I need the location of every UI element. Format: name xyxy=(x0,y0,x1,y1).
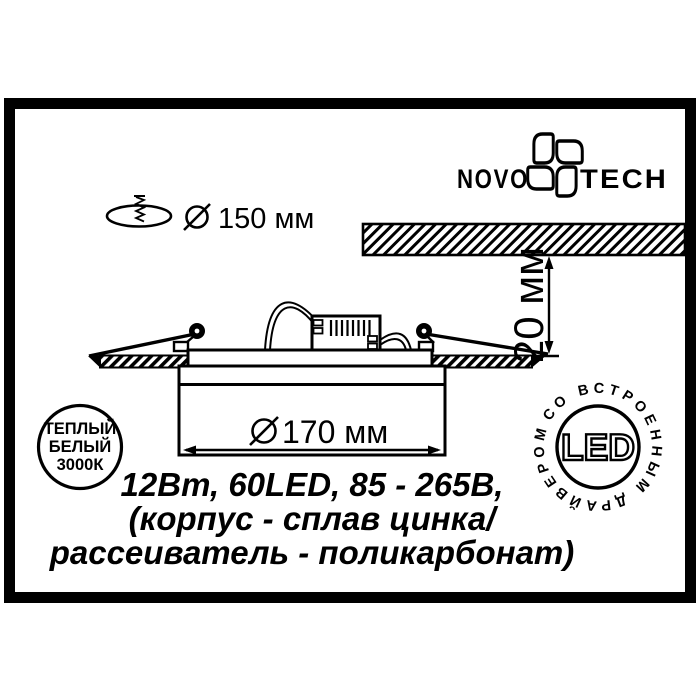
logo-text-tech: TECH xyxy=(580,164,668,194)
trim-flange-left xyxy=(88,356,188,368)
mounting-hole-icon xyxy=(107,196,171,227)
warm-white-line-1: ТЕПЛЫЙ xyxy=(44,419,117,438)
logo-text-novo: NOVO xyxy=(457,164,529,194)
flower-icon xyxy=(528,134,583,196)
cutout-diameter-label: 150 мм xyxy=(218,203,314,235)
driver-box xyxy=(312,316,380,352)
trim-flange-right xyxy=(432,354,548,368)
drill-icon xyxy=(136,197,144,222)
mounting-plate xyxy=(188,350,432,366)
warm-white-line-3: 3000К xyxy=(57,456,105,474)
depth-label: 20 мм xyxy=(505,247,552,363)
diagram-canvas: NOVO TECH 150 мм 20 мм xyxy=(0,0,700,700)
warm-white-badge: ТЕПЛЫЙ БЕЛЫЙ 3000К xyxy=(39,406,122,489)
spec-line-1: 12Вт, 60LED, 85 - 265В, xyxy=(121,466,504,503)
depth-dimension: 20 мм xyxy=(505,247,559,363)
cutout-dimension: 150 мм xyxy=(107,196,314,235)
spec-text: 12Вт, 60LED, 85 - 265В, (корпус - сплав … xyxy=(49,466,575,571)
spec-line-2: (корпус - сплав цинка/ xyxy=(129,500,500,537)
warm-white-line-2: БЕЛЫЙ xyxy=(49,437,111,456)
diameter-symbol xyxy=(184,204,210,230)
led-badge: LED СО ВСТРОЕННЫМ ДРАЙВЕРОМ xyxy=(532,381,665,514)
product-spec-sheet: NOVO TECH 150 мм 20 мм xyxy=(0,0,700,700)
led-badge-center-label: LED xyxy=(561,427,635,468)
spec-line-3: рассеиватель - поликарбонат) xyxy=(49,534,575,571)
body-diameter-label: 170 мм xyxy=(282,414,388,450)
fixture-cross-section: 170 мм xyxy=(88,302,548,455)
novotech-logo: NOVO TECH xyxy=(457,134,668,196)
